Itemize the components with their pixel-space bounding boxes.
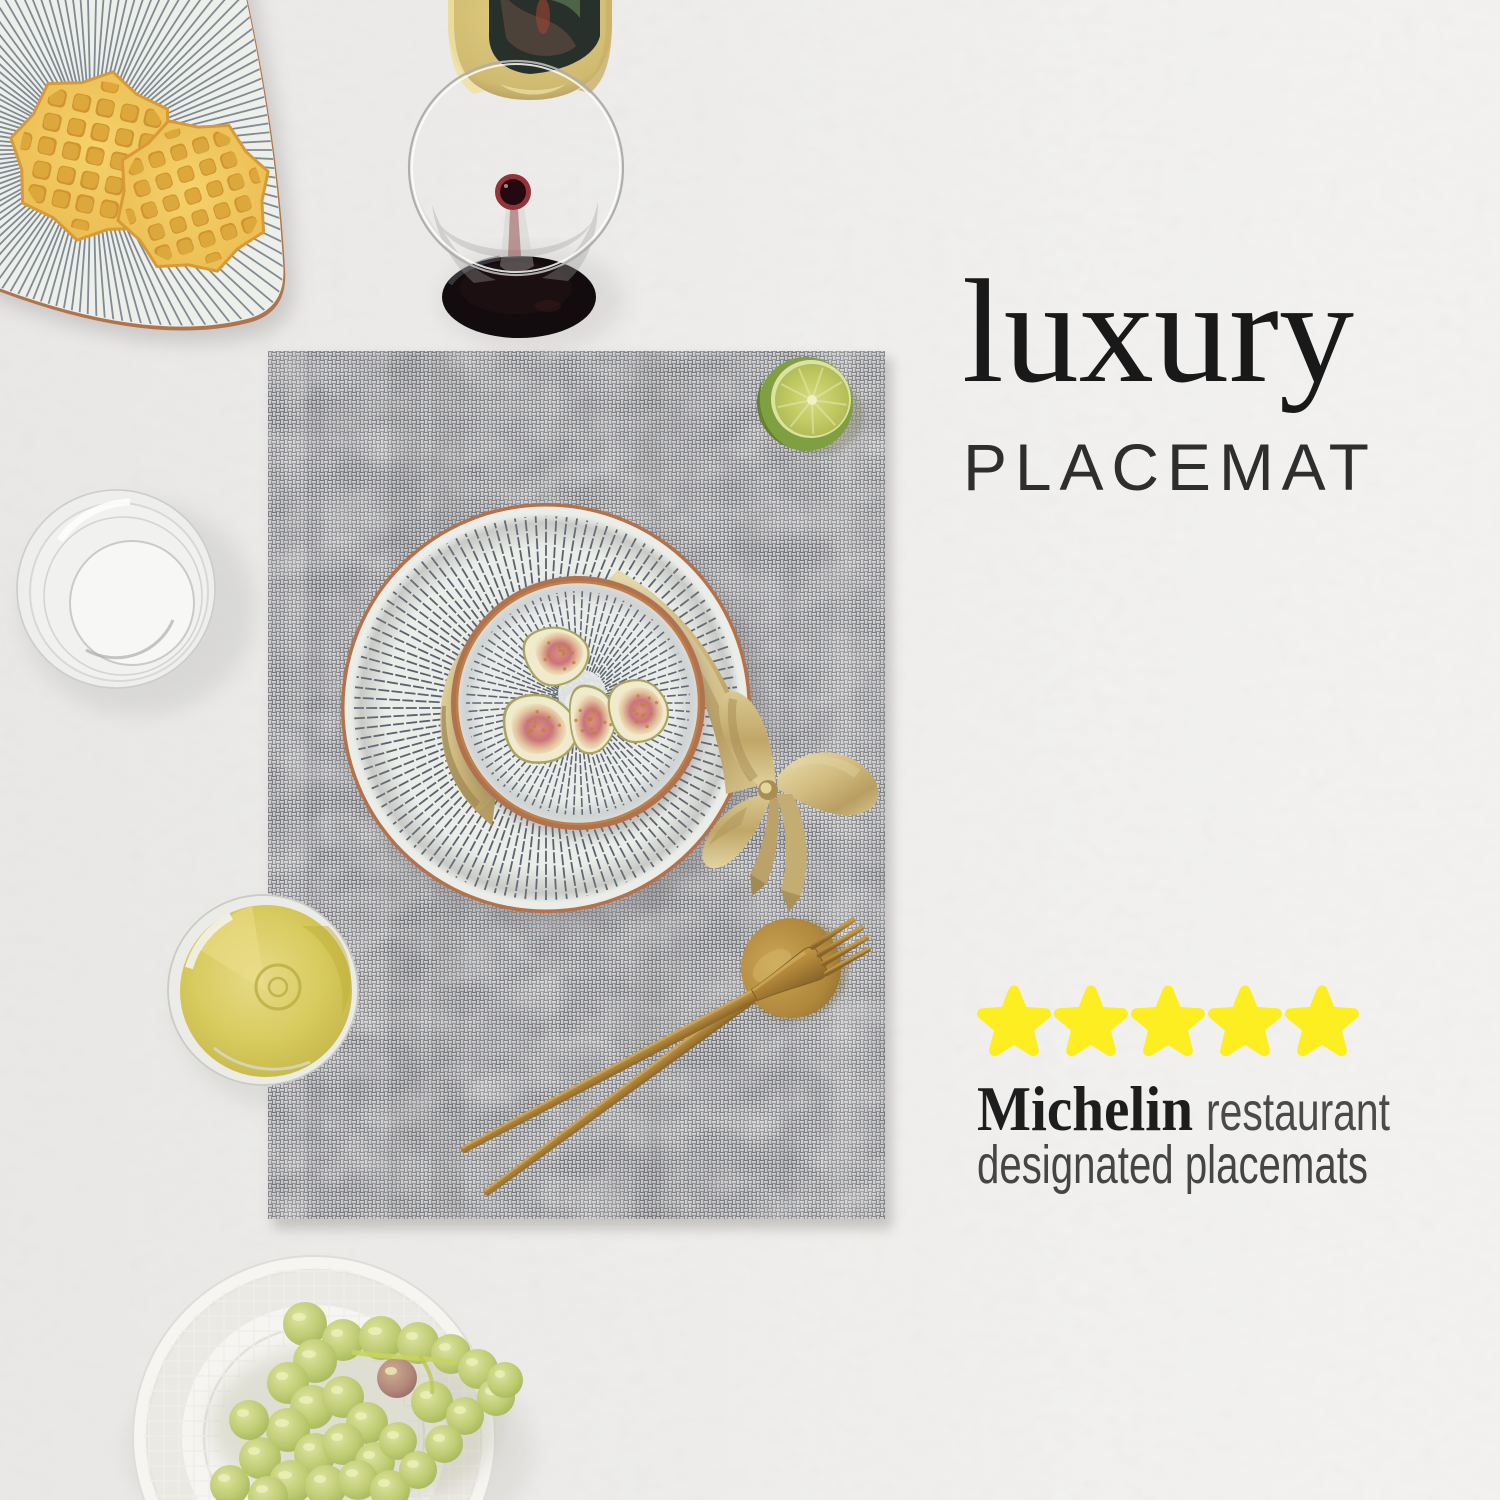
svg-text:Michelin: Michelin	[977, 1073, 1193, 1144]
svg-text:designated placemats: designated placemats	[977, 1135, 1368, 1195]
svg-text:PLACEMAT: PLACEMAT	[963, 430, 1369, 504]
svg-text:luxury: luxury	[962, 250, 1354, 414]
svg-text:restaurant: restaurant	[1206, 1082, 1390, 1142]
